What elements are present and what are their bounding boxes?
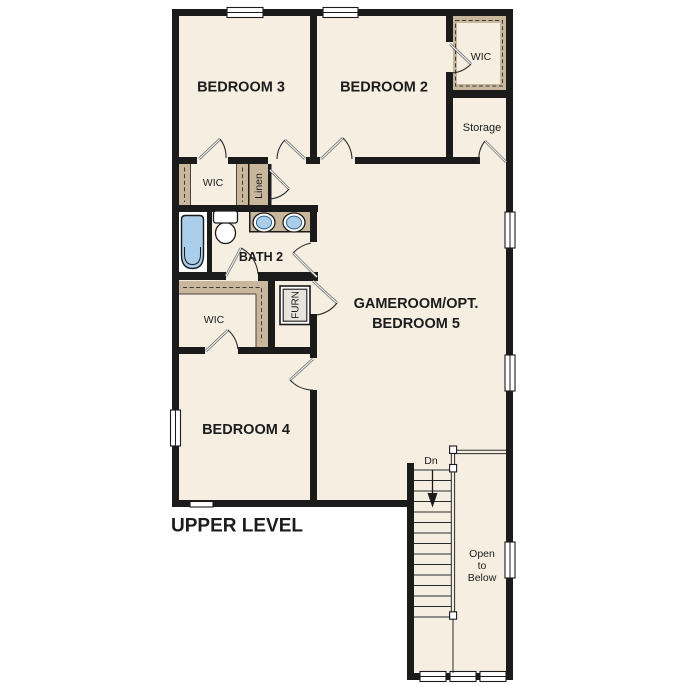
room-label-bath-2: BATH 2: [239, 250, 283, 264]
room-label-gameroom-line1: GAMEROOM/OPT.: [354, 296, 479, 312]
room-label-gameroom-line2: BEDROOM 5: [372, 316, 460, 332]
window-icon: [420, 672, 446, 682]
closet-label-wic-bedroom4: WIC: [204, 314, 225, 326]
bathtub-icon: [179, 212, 207, 272]
window-icon: [505, 212, 515, 248]
window-icon: [171, 410, 181, 446]
stairs-direction-label: Dn: [424, 455, 438, 467]
window-icon: [480, 672, 506, 682]
floor-plan-svg: BEDROOM 3 BEDROOM 2 WIC Storage WIC Line…: [0, 0, 687, 687]
closet-label-wic-upper-right: WIC: [471, 51, 492, 63]
open-to-below-label-line3: Below: [468, 572, 497, 584]
closet-label-storage: Storage: [463, 122, 502, 134]
toilet-icon: [214, 211, 238, 244]
floor-plan-page: BEDROOM 3 BEDROOM 2 WIC Storage WIC Line…: [0, 0, 687, 687]
room-label-bedroom-4: BEDROOM 4: [202, 422, 290, 438]
window-icon: [190, 502, 213, 508]
closet-label-furnace: FURN: [291, 291, 302, 319]
window-icon: [227, 8, 263, 18]
window-icon: [505, 542, 515, 578]
floor-area: [172, 9, 513, 680]
plan-title: UPPER LEVEL: [171, 516, 303, 537]
closet-label-wic-hall: WIC: [203, 177, 224, 189]
room-label-bedroom-3: BEDROOM 3: [197, 80, 285, 96]
window-icon: [323, 8, 358, 18]
window-icon: [450, 672, 476, 682]
open-to-below-label-line2: to: [478, 560, 487, 572]
window-icon: [505, 355, 515, 391]
open-to-below-label-line1: Open: [469, 548, 495, 560]
closet-label-linen: Linen: [253, 173, 265, 199]
room-label-bedroom-2: BEDROOM 2: [340, 80, 428, 96]
